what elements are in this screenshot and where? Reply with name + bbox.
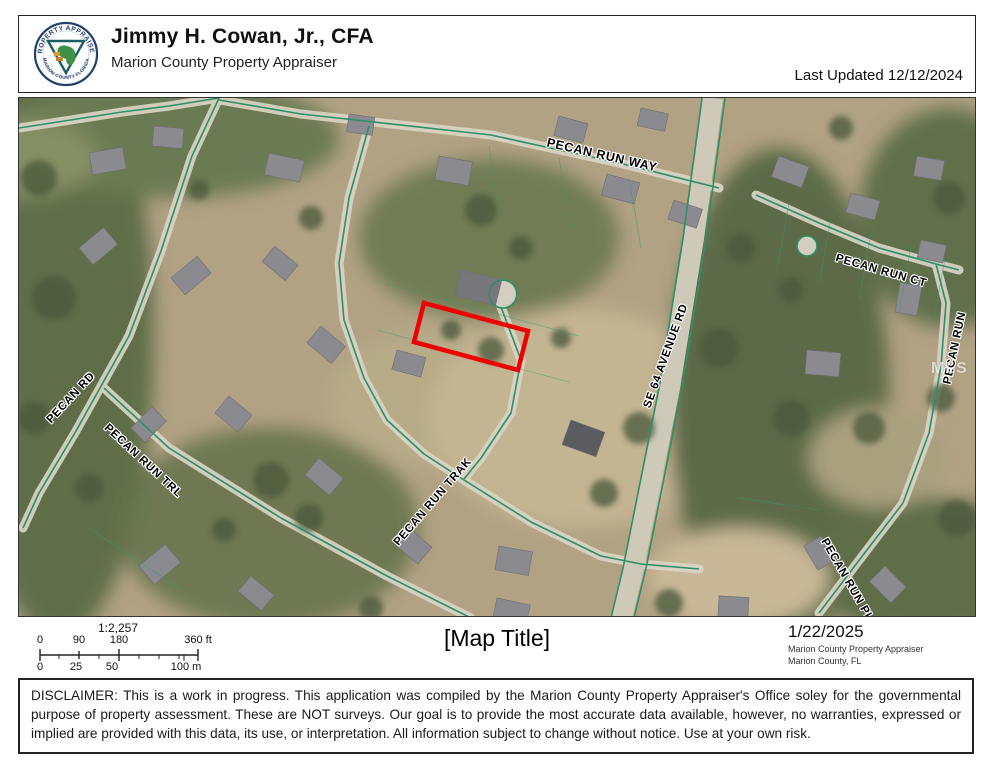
attribution-line-2: Marion County, FL	[788, 656, 924, 668]
seal-building-icon	[54, 52, 60, 56]
attribution-line-1: Marion County Property Appraiser	[788, 644, 924, 656]
map-sheet-page: PROPERTY APPRAISER MARION COUNTY FLORIDA…	[0, 0, 994, 768]
mls-watermark: MLS	[931, 360, 968, 378]
disclaimer-box: DISCLAIMER: This is a work in progress. …	[18, 678, 974, 754]
date-attribution-block: 1/22/2025 Marion County Property Apprais…	[788, 622, 924, 667]
last-updated-text: Last Updated 12/12/2024	[795, 67, 963, 84]
header-bar: PROPERTY APPRAISER MARION COUNTY FLORIDA…	[18, 15, 976, 93]
aerial-map: PECAN RUN WAY PECAN RUN CT PECAN RUN SE …	[18, 97, 976, 617]
appraiser-name: Jimmy H. Cowan, Jr., CFA	[111, 25, 374, 49]
scale-meter-labels: 0 25 50 100 m	[38, 661, 238, 673]
map-date: 1/22/2025	[788, 622, 924, 642]
property-appraiser-seal-logo: PROPERTY APPRAISER MARION COUNTY FLORIDA	[33, 21, 99, 87]
seal-building-icon	[56, 57, 63, 61]
appraiser-office: Marion County Property Appraiser	[111, 54, 337, 71]
aerial-imagery	[19, 98, 976, 617]
map-footer: 1:2,257 0 90 180 360 ft	[18, 617, 976, 678]
